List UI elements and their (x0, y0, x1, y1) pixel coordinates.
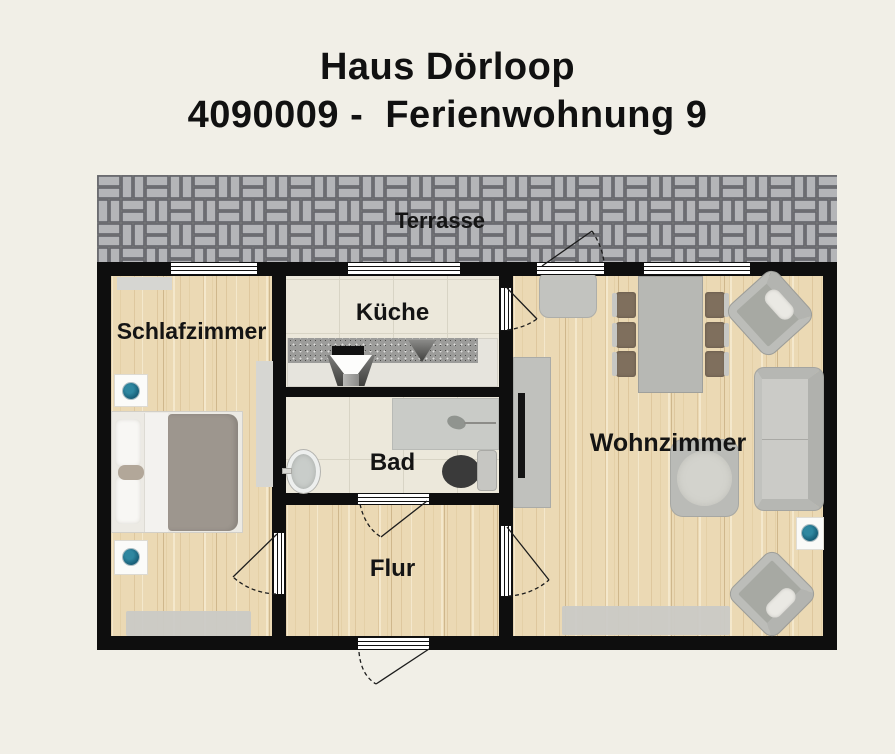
dining-chair-4 (705, 292, 725, 318)
window-wohnzimmer (643, 262, 751, 275)
bedroom-shelf (117, 277, 172, 290)
sofa (755, 368, 823, 510)
living-room-rug (562, 606, 730, 635)
chair-back (724, 352, 729, 376)
door-kueche-wohnzimmer (500, 287, 512, 331)
dining-chair-1 (616, 292, 636, 318)
bed-blanket (168, 414, 238, 531)
bed (111, 411, 243, 533)
kitchen-countertop (288, 338, 478, 363)
sofa-cushion-split (762, 439, 808, 440)
bed-bolster (118, 465, 144, 480)
door-schlafzimmer (273, 532, 285, 595)
bed-pillow-1 (115, 419, 141, 467)
plan-title-line2: 4090009 - Ferienwohnung 9 (0, 94, 895, 137)
window-schlafzimmer (170, 262, 258, 275)
window-kueche (347, 262, 461, 275)
door-bad (357, 493, 430, 505)
wall-kueche-bad (286, 387, 499, 397)
armchair-cushion (763, 585, 799, 621)
shower (392, 398, 499, 450)
bedside-lamp-bottom (123, 549, 139, 565)
kitchen-sink-drain (343, 374, 359, 386)
chair-back (612, 323, 617, 347)
chair-back (612, 293, 617, 317)
dining-chair-3 (616, 351, 636, 377)
dining-chair-2 (616, 322, 636, 348)
bed-sheet (144, 413, 168, 532)
coffee-table (671, 440, 738, 516)
terrace-door (536, 262, 605, 275)
plan-title-line1: Haus Dörloop (0, 46, 895, 89)
terrace-area (97, 175, 837, 262)
tv (518, 393, 525, 478)
side-table-terrace (539, 271, 597, 318)
coffee-table-top (677, 451, 732, 506)
armchair-cushion (762, 286, 797, 323)
bed-pillow-2 (115, 476, 141, 524)
toilet-tank (477, 450, 497, 491)
living-room-lamp (802, 525, 818, 541)
wardrobe (256, 361, 273, 487)
chair-back (612, 352, 617, 376)
paver-pattern (97, 175, 837, 262)
bedside-lamp-top (123, 383, 139, 399)
washbasin-faucet (282, 468, 292, 474)
cooktop (332, 346, 364, 355)
shower-arm (464, 422, 496, 424)
door-wohnzimmer (500, 525, 512, 597)
entrance-door (357, 637, 430, 650)
toilet-bowl (442, 455, 480, 488)
dining-table (638, 276, 703, 393)
chair-back (724, 323, 729, 347)
dining-chair-6 (705, 351, 725, 377)
bedroom-rug (126, 611, 251, 636)
dining-chair-5 (705, 322, 725, 348)
